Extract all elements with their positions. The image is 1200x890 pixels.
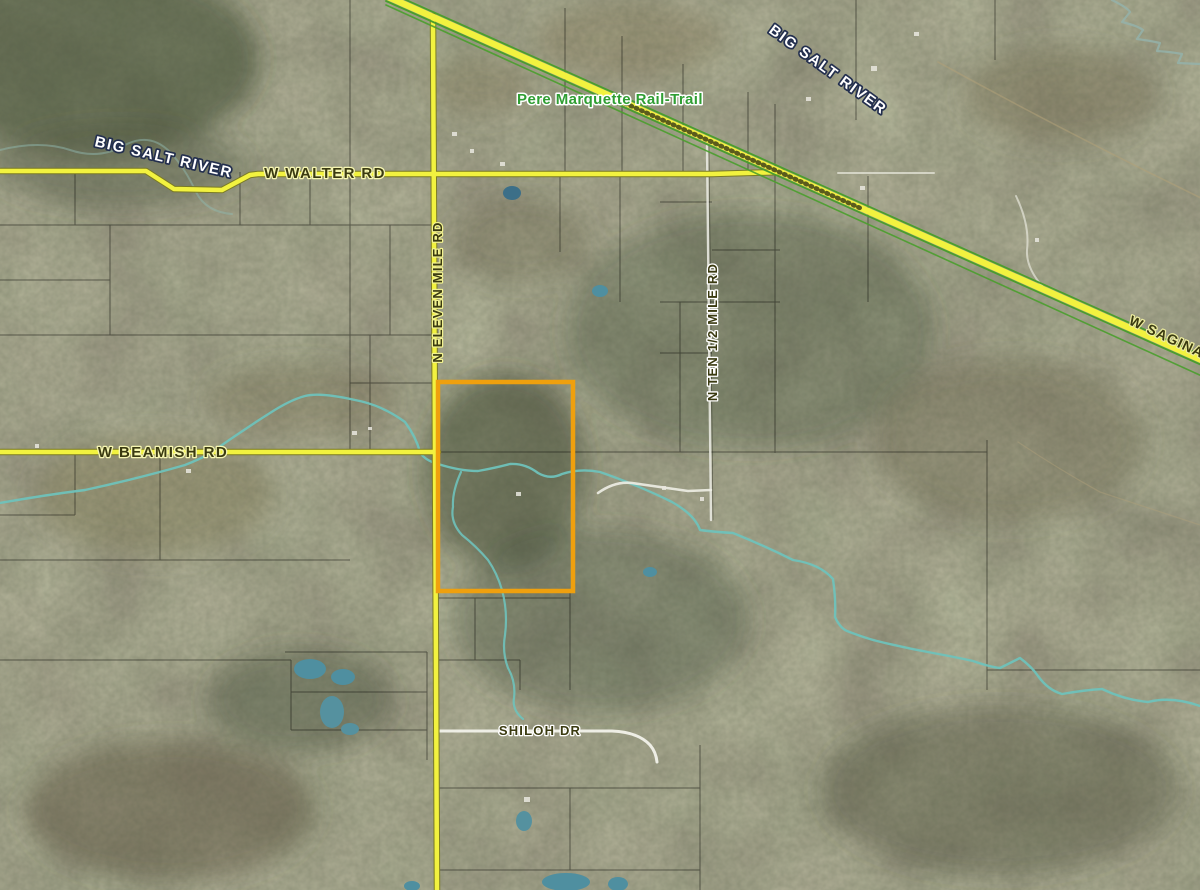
map-viewport[interactable]: BIG SALT RIVER BIG SALT RIVER Pere Marqu… (0, 0, 1200, 890)
aerial-map-canvas[interactable]: BIG SALT RIVER BIG SALT RIVER Pere Marqu… (0, 0, 1200, 890)
rail-trail-label: Pere Marquette Rail-Trail (517, 91, 703, 108)
eleven-mile-rd-label: N ELEVEN MILE RD (430, 221, 445, 362)
ten-half-mile-rd-label: N TEN 1/2 MILE RD (705, 263, 720, 401)
shiloh-dr-label: SHILOH DR (499, 723, 581, 738)
walter-rd-label: W WALTER RD (264, 165, 386, 182)
beamish-rd-label: W BEAMISH RD (98, 444, 228, 461)
